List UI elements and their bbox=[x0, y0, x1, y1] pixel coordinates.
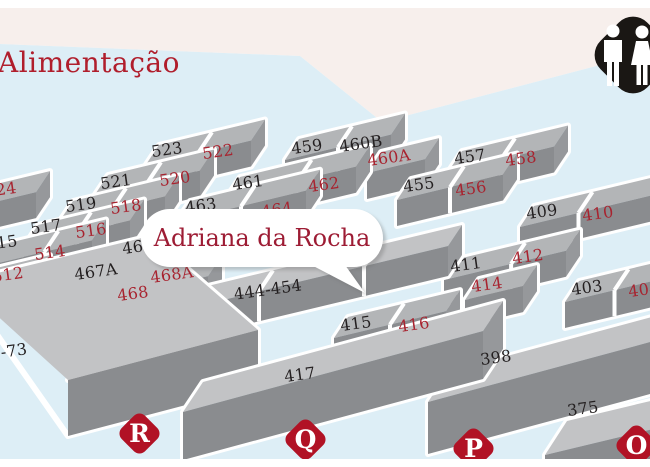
booth-label-524[interactable]: 524 bbox=[0, 180, 18, 200]
booth-label-514[interactable]: 514 bbox=[33, 243, 66, 263]
booth-label-462[interactable]: 462 bbox=[307, 175, 340, 195]
booth-label-410[interactable]: 410 bbox=[581, 204, 614, 224]
aisle-marker-q-letter: Q bbox=[289, 423, 322, 456]
aisle-marker-r[interactable]: R bbox=[116, 410, 163, 457]
booth-label-459[interactable]: 459 bbox=[290, 137, 323, 157]
aisle-marker-r-letter: R bbox=[123, 417, 156, 450]
booth-label-414[interactable]: 414 bbox=[470, 275, 503, 295]
booth-label-458[interactable]: 458 bbox=[504, 149, 537, 169]
booth-label-516[interactable]: 516 bbox=[74, 221, 107, 241]
booth-label-519[interactable]: 519 bbox=[64, 195, 97, 215]
booth-label-518[interactable]: 518 bbox=[109, 197, 142, 217]
exhibition-floor-map: Alimentação 5235225215205195185175165155… bbox=[0, 0, 650, 467]
area-title: Alimentação bbox=[0, 46, 180, 79]
booth-label-456[interactable]: 456 bbox=[454, 179, 487, 199]
booth-label-515[interactable]: 515 bbox=[0, 233, 19, 253]
aisle-marker-o-letter: O bbox=[620, 429, 650, 462]
callout-exhibitor-name: Adriana da Rocha bbox=[154, 224, 371, 252]
booth-label-468[interactable]: 468 bbox=[116, 284, 149, 304]
booth-label-517[interactable]: 517 bbox=[29, 217, 62, 237]
booth-label-457[interactable]: 457 bbox=[453, 147, 486, 167]
bottom-margin-strip bbox=[0, 459, 650, 467]
booth-label-412[interactable]: 412 bbox=[511, 247, 544, 267]
booth-label-403[interactable]: 403 bbox=[570, 278, 603, 298]
restroom-figures-icon bbox=[592, 14, 650, 104]
booth-label-416[interactable]: 416 bbox=[397, 315, 430, 335]
booth-label-409[interactable]: 409 bbox=[525, 202, 558, 222]
booth-label-461[interactable]: 461 bbox=[231, 173, 264, 193]
booth-label-415[interactable]: 415 bbox=[339, 314, 372, 334]
booth-label-520[interactable]: 520 bbox=[158, 169, 191, 189]
booth-label-375[interactable]: 375 bbox=[566, 399, 599, 419]
booth-label-512[interactable]: 512 bbox=[0, 265, 25, 285]
booth-label-522[interactable]: 522 bbox=[201, 142, 234, 162]
booth-label-398[interactable]: 398 bbox=[479, 348, 512, 368]
callout-bubble: Adriana da Rocha bbox=[141, 209, 383, 267]
booth-label-521[interactable]: 521 bbox=[99, 172, 132, 192]
aisle-marker-q[interactable]: Q bbox=[282, 416, 329, 463]
booth-label-417[interactable]: 417 bbox=[283, 365, 316, 385]
booth-label-404[interactable]: 404 bbox=[627, 280, 650, 300]
booth-label-455[interactable]: 455 bbox=[402, 175, 435, 195]
booth-label-411[interactable]: 411 bbox=[449, 255, 482, 275]
booth-label--73[interactable]: -73 bbox=[0, 341, 28, 361]
booth-label-523[interactable]: 523 bbox=[150, 140, 183, 160]
